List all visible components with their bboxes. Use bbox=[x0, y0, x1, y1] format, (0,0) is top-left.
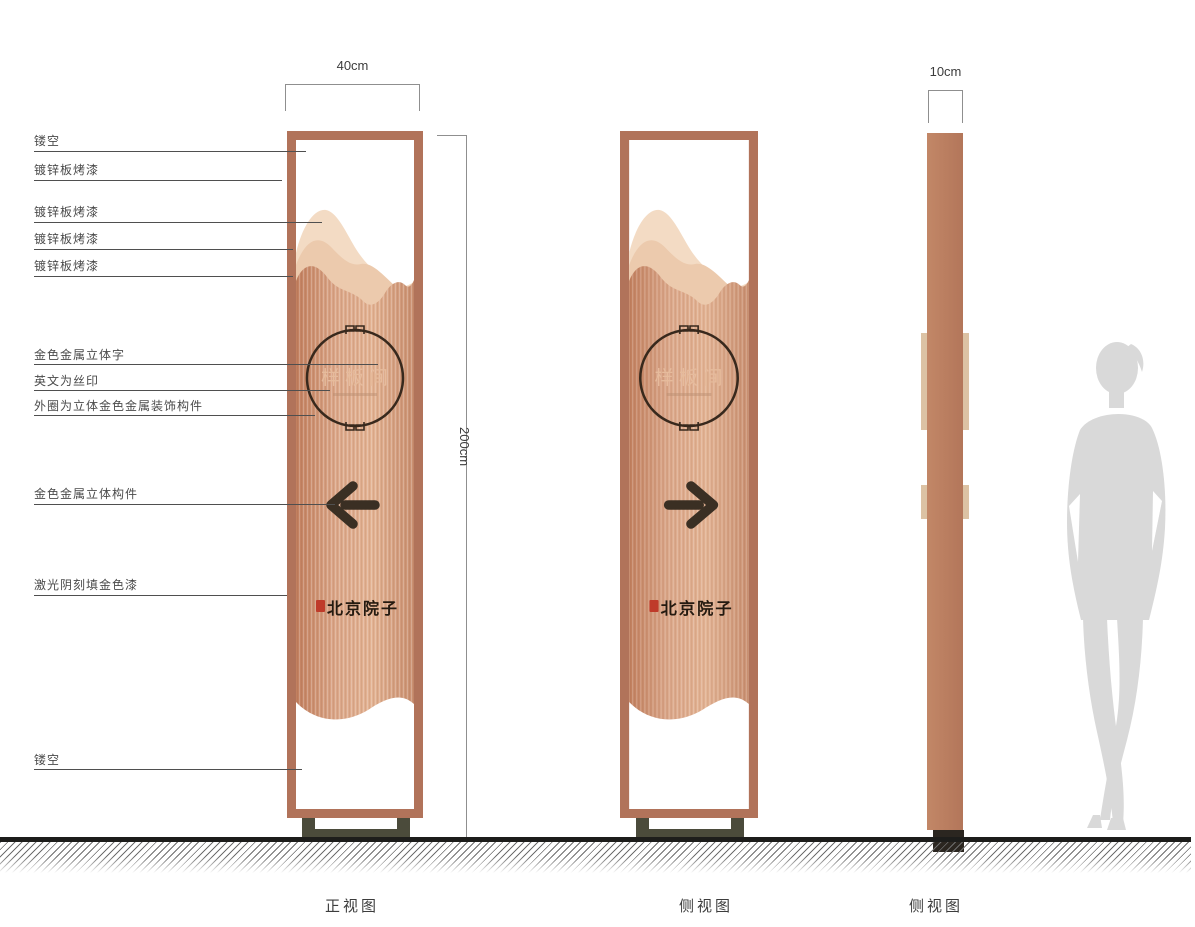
room-label-text: 样板间 bbox=[321, 367, 393, 389]
callout-text: 激光阴刻填金色漆 bbox=[34, 576, 138, 593]
callout-leader-line bbox=[34, 180, 282, 181]
human-silhouette bbox=[1035, 336, 1180, 838]
callout-text: 镀锌板烤漆 bbox=[34, 230, 99, 247]
brushed-texture bbox=[296, 266, 414, 719]
callout-text: 金色金属立体构件 bbox=[34, 485, 138, 502]
brand-calligraphy: 北京院子 bbox=[661, 599, 734, 618]
dimension-height-line bbox=[466, 135, 467, 838]
english-silkscreen-strip bbox=[667, 393, 712, 396]
callout-leader-line bbox=[34, 276, 293, 277]
callout-leader-line bbox=[34, 595, 287, 596]
front-view-pillar: 样板间 北京院子 bbox=[287, 131, 423, 818]
pillar-base bbox=[636, 818, 744, 838]
view-caption-side: 侧视图 bbox=[656, 895, 756, 916]
signage-design-sheet: 镂空 镀锌板烤漆 镀锌板烤漆 镀锌板烤漆 镀锌板烤漆 金色金属立体字 英文为丝印… bbox=[0, 0, 1195, 927]
callout-text: 镀锌板烤漆 bbox=[34, 161, 99, 178]
english-silkscreen-strip bbox=[333, 393, 377, 396]
dimension-front-width-label: 40cm bbox=[285, 58, 420, 73]
view-caption-front: 正视图 bbox=[302, 895, 402, 916]
callout-leader-line bbox=[34, 222, 322, 223]
pillar-base bbox=[302, 818, 410, 838]
callout-text: 英文为丝印 bbox=[34, 372, 99, 389]
dimension-side-width-bracket bbox=[928, 90, 963, 123]
dimension-height-tick bbox=[437, 135, 466, 136]
callout-text: 镀锌板烤漆 bbox=[34, 257, 99, 274]
callout-leader-line bbox=[34, 151, 306, 152]
callout-leader-line bbox=[34, 504, 335, 505]
room-label-text: 样板间 bbox=[655, 367, 728, 389]
callout-leader-line bbox=[34, 390, 330, 391]
red-seal-icon bbox=[316, 600, 325, 612]
dimension-front-width-bracket bbox=[285, 84, 420, 111]
brushed-texture bbox=[629, 266, 749, 719]
callout-leader-line bbox=[34, 769, 302, 770]
callout-text: 镂空 bbox=[34, 132, 60, 149]
view-caption-profile: 侧视图 bbox=[886, 895, 986, 916]
callout-text: 金色金属立体字 bbox=[34, 346, 125, 363]
dimension-height-label: 200cm bbox=[457, 427, 472, 466]
callout-text: 外圈为立体金色金属装饰构件 bbox=[34, 397, 203, 414]
callout-leader-line bbox=[34, 364, 378, 365]
callout-leader-line bbox=[34, 249, 293, 250]
red-seal-icon bbox=[649, 600, 658, 612]
side-view-pillar: 样板间 北京院子 bbox=[620, 131, 758, 818]
ground-hatch bbox=[0, 842, 1191, 873]
dimension-side-width-label: 10cm bbox=[908, 64, 983, 79]
profile-view-pillar bbox=[927, 133, 963, 830]
callout-text: 镂空 bbox=[34, 751, 60, 768]
callout-leader-line bbox=[34, 415, 315, 416]
brand-calligraphy: 北京院子 bbox=[327, 599, 399, 618]
callout-text: 镀锌板烤漆 bbox=[34, 203, 99, 220]
